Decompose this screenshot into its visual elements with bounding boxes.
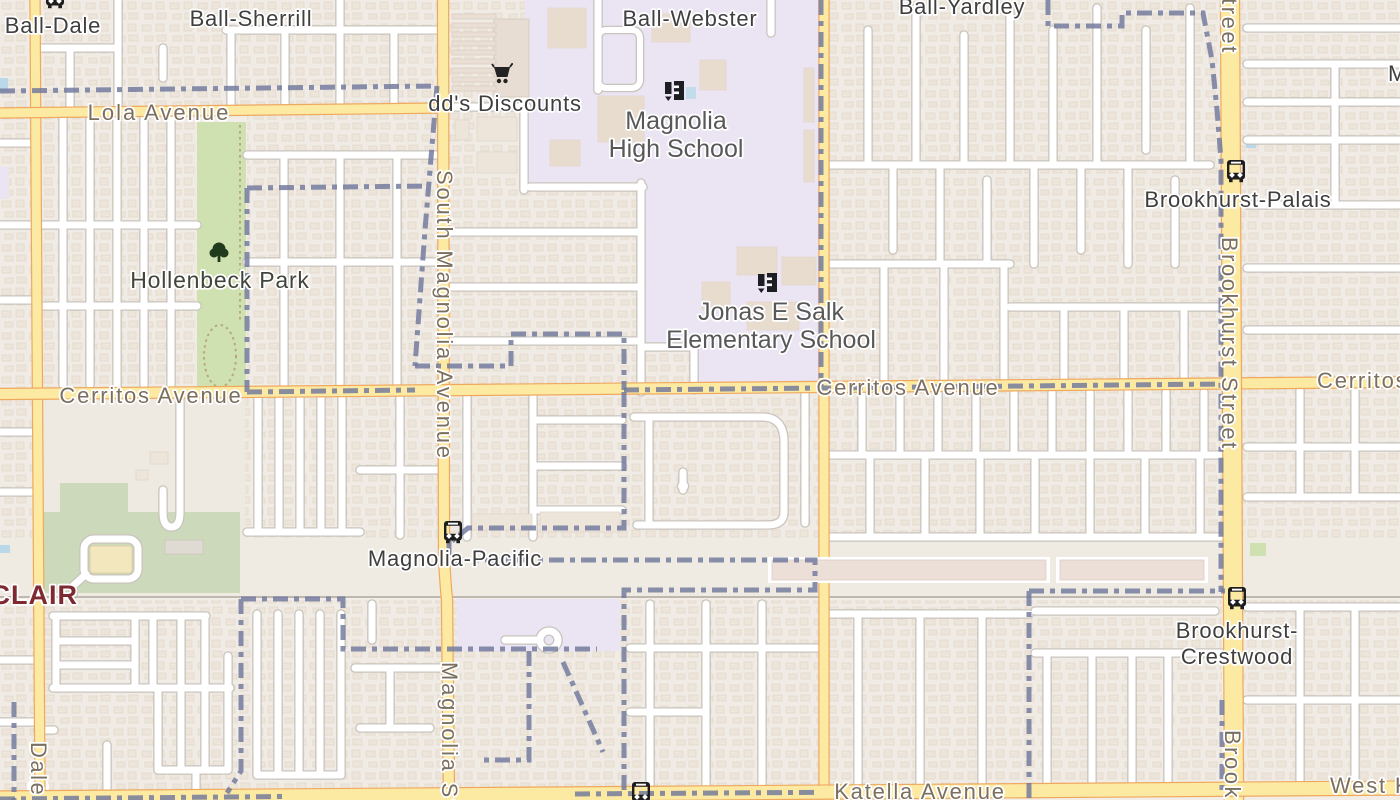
svg-text:dd's Discounts: dd's Discounts [428, 91, 582, 116]
svg-text:Hollenbeck Park: Hollenbeck Park [130, 267, 309, 293]
svg-text:M: M [1388, 61, 1400, 86]
svg-text:Brookhurst-: Brookhurst- [1176, 618, 1299, 643]
svg-text:Dale: Dale [26, 742, 51, 797]
svg-text:Magnolia: Magnolia [625, 107, 727, 135]
svg-text:Lola Avenue: Lola Avenue [88, 100, 231, 125]
svg-text:Brookhurst Street: Brookhurst Street [1217, 237, 1242, 451]
svg-text:Brookhurst-Palais: Brookhurst-Palais [1144, 187, 1331, 212]
svg-text:Cerritos Avenue: Cerritos Avenue [816, 375, 999, 400]
svg-text:Katella Avenue: Katella Avenue [834, 779, 1006, 800]
svg-text:West Ka: West Ka [1330, 773, 1400, 798]
svg-text:High School: High School [609, 135, 744, 163]
svg-text:Cerritos Av: Cerritos Av [1317, 368, 1400, 393]
svg-text:Crestwood: Crestwood [1181, 644, 1293, 669]
svg-text:Ball-Sherrill: Ball-Sherrill [190, 6, 313, 31]
svg-text:Brookhurst Street: Brookhurst Street [1217, 0, 1242, 55]
svg-text:Ball-Dale: Ball-Dale [5, 13, 101, 38]
svg-text:Magnolia Street: Magnolia Street [437, 662, 462, 800]
svg-text:CLAIR: CLAIR [0, 580, 78, 610]
svg-text:Cerritos Avenue: Cerritos Avenue [59, 383, 242, 408]
svg-text:Elementary School: Elementary School [666, 326, 876, 354]
svg-text:Brookhurst Street: Brookhurst Street [1220, 730, 1245, 800]
svg-text:Ball-Yardley: Ball-Yardley [899, 0, 1026, 19]
svg-text:Ball-Webster: Ball-Webster [622, 6, 757, 31]
svg-text:Jonas E Salk: Jonas E Salk [698, 298, 844, 326]
svg-text:Magnolia-Pacific: Magnolia-Pacific [368, 546, 542, 571]
svg-text:South Magnolia Avenue: South Magnolia Avenue [432, 170, 457, 461]
